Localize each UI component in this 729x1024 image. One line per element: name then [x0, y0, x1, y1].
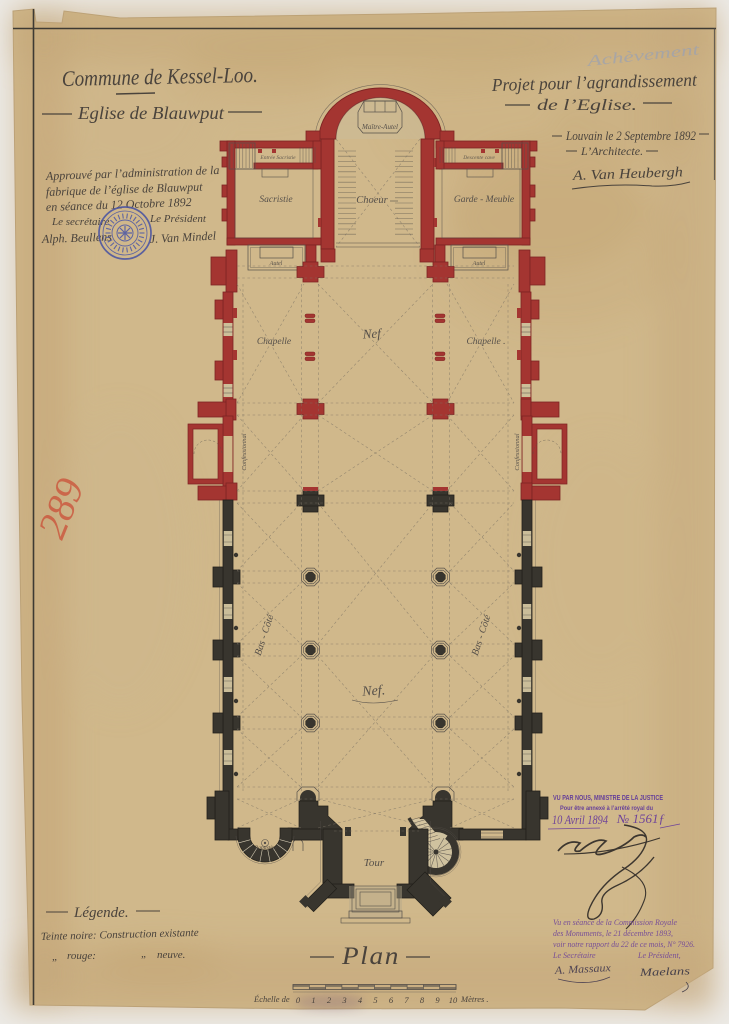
- svg-text:Le Secrétaire: Le Secrétaire: [552, 951, 596, 960]
- svg-text:Légende.: Légende.: [73, 905, 129, 921]
- svg-text:Tour: Tour: [364, 857, 385, 869]
- svg-text:Le Président: Le Président: [149, 213, 207, 225]
- svg-text:L’Architecte.: L’Architecte.: [580, 144, 643, 158]
- svg-text:Baptistère: Baptistère: [255, 845, 278, 851]
- svg-text:Le Président,: Le Président,: [637, 951, 681, 960]
- svg-text:de l’Eglise.: de l’Eglise.: [537, 97, 637, 114]
- svg-text:Entrée Sacristie: Entrée Sacristie: [259, 155, 296, 161]
- svg-text:Vu en séance de la Commission: Vu en séance de la Commission Royale: [553, 917, 677, 927]
- svg-text:des Monuments, le 21 décembre: des Monuments, le 21 décembre 1893,: [553, 928, 673, 938]
- svg-text:10 Avril 1894: 10 Avril 1894: [552, 812, 608, 827]
- svg-text:Louvain le 2 Septembre 1892: Louvain le 2 Septembre 1892: [565, 129, 696, 143]
- svg-text:Plan: Plan: [341, 943, 400, 970]
- svg-text:Chapelle .: Chapelle .: [466, 337, 505, 347]
- svg-text:„: „: [52, 951, 58, 963]
- svg-text:5: 5: [373, 995, 377, 1005]
- svg-text:Eglise de Blauwput: Eglise de Blauwput: [77, 103, 225, 123]
- svg-text:Échelle de: Échelle de: [253, 994, 290, 1004]
- svg-text:Nef: Nef: [361, 325, 383, 341]
- svg-text:3: 3: [341, 995, 346, 1005]
- svg-text:neuve.: neuve.: [157, 949, 185, 961]
- svg-text:Mètres .: Mètres .: [460, 994, 489, 1004]
- svg-text:Commune de Kessel-Loo.: Commune de Kessel-Loo.: [62, 62, 258, 91]
- svg-text:Choeur: Choeur: [356, 195, 388, 206]
- svg-text:Garde - Meuble: Garde - Meuble: [454, 195, 514, 205]
- svg-text:Confessionnal: Confessionnal: [514, 433, 521, 470]
- svg-text:№ 1561ƒ: № 1561ƒ: [616, 812, 665, 826]
- svg-text:Maître-Autel: Maître-Autel: [361, 123, 398, 131]
- svg-text:1: 1: [311, 995, 315, 1005]
- svg-text:VU PAR NOUS, MINISTRE DE LA JU: VU PAR NOUS, MINISTRE DE LA JUSTICE: [553, 793, 663, 802]
- svg-text:rouge:: rouge:: [67, 950, 96, 962]
- svg-text:Descente cave: Descente cave: [462, 155, 495, 161]
- svg-text:voir notre rapport du 22 de ce: voir notre rapport du 22 de ce mois, N° …: [553, 939, 695, 949]
- svg-text:10: 10: [449, 995, 458, 1005]
- svg-text:Nef.: Nef.: [361, 683, 386, 700]
- svg-text:Confessionnal: Confessionnal: [241, 433, 248, 470]
- svg-text:Maelans: Maelans: [638, 965, 690, 979]
- svg-text:Sacristie: Sacristie: [259, 195, 292, 205]
- svg-text:„: „: [141, 948, 147, 960]
- svg-text:Pour être annexé à l’arrêté ro: Pour être annexé à l’arrêté royal du: [560, 805, 653, 812]
- svg-text:Chapelle: Chapelle: [257, 337, 291, 347]
